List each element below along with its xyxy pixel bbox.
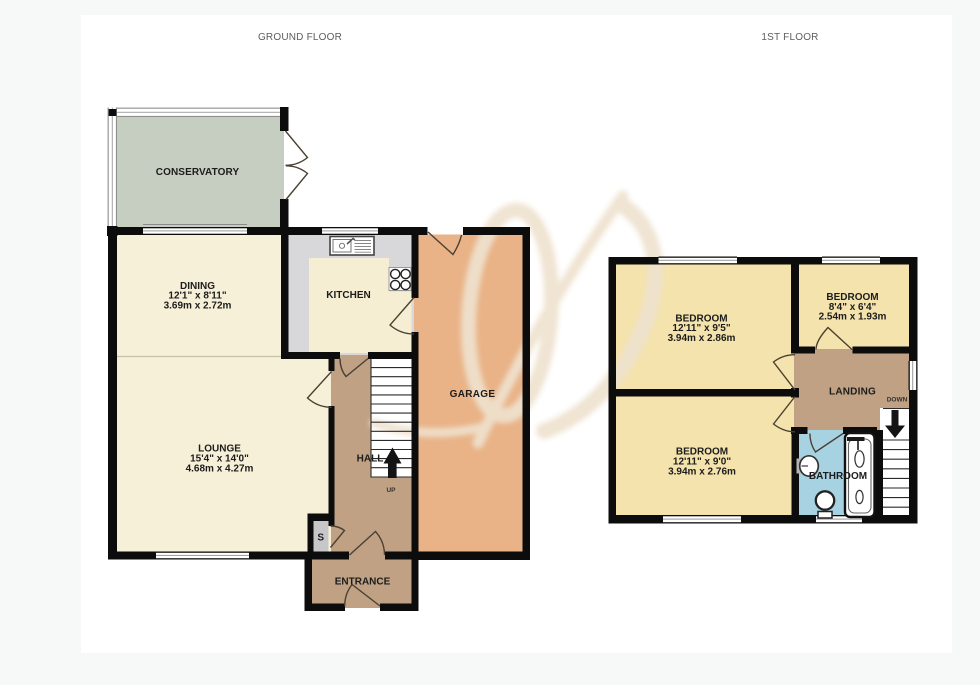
svg-text:BATHROOM: BATHROOM [809, 471, 867, 482]
svg-text:3.94m x 2.86m: 3.94m x 2.86m [668, 333, 736, 344]
svg-text:4.68m x 4.27m: 4.68m x 4.27m [186, 463, 254, 474]
svg-text:LANDING: LANDING [829, 387, 876, 398]
svg-text:3.94m x 2.76m: 3.94m x 2.76m [668, 466, 736, 477]
svg-text:2.54m x 1.93m: 2.54m x 1.93m [819, 311, 887, 322]
svg-text:DOWN: DOWN [887, 397, 908, 404]
svg-text:KITCHEN: KITCHEN [326, 290, 370, 301]
svg-text:GROUND FLOOR: GROUND FLOOR [258, 32, 342, 43]
svg-text:GARAGE: GARAGE [450, 389, 496, 400]
svg-text:S: S [317, 533, 324, 544]
svg-text:3.69m x 2.72m: 3.69m x 2.72m [164, 300, 232, 311]
svg-text:ENTRANCE: ENTRANCE [335, 577, 391, 588]
svg-text:1ST FLOOR: 1ST FLOOR [761, 32, 818, 43]
svg-text:CONSERVATORY: CONSERVATORY [156, 167, 240, 178]
svg-text:HALL: HALL [357, 454, 384, 465]
svg-text:UP: UP [386, 487, 396, 494]
